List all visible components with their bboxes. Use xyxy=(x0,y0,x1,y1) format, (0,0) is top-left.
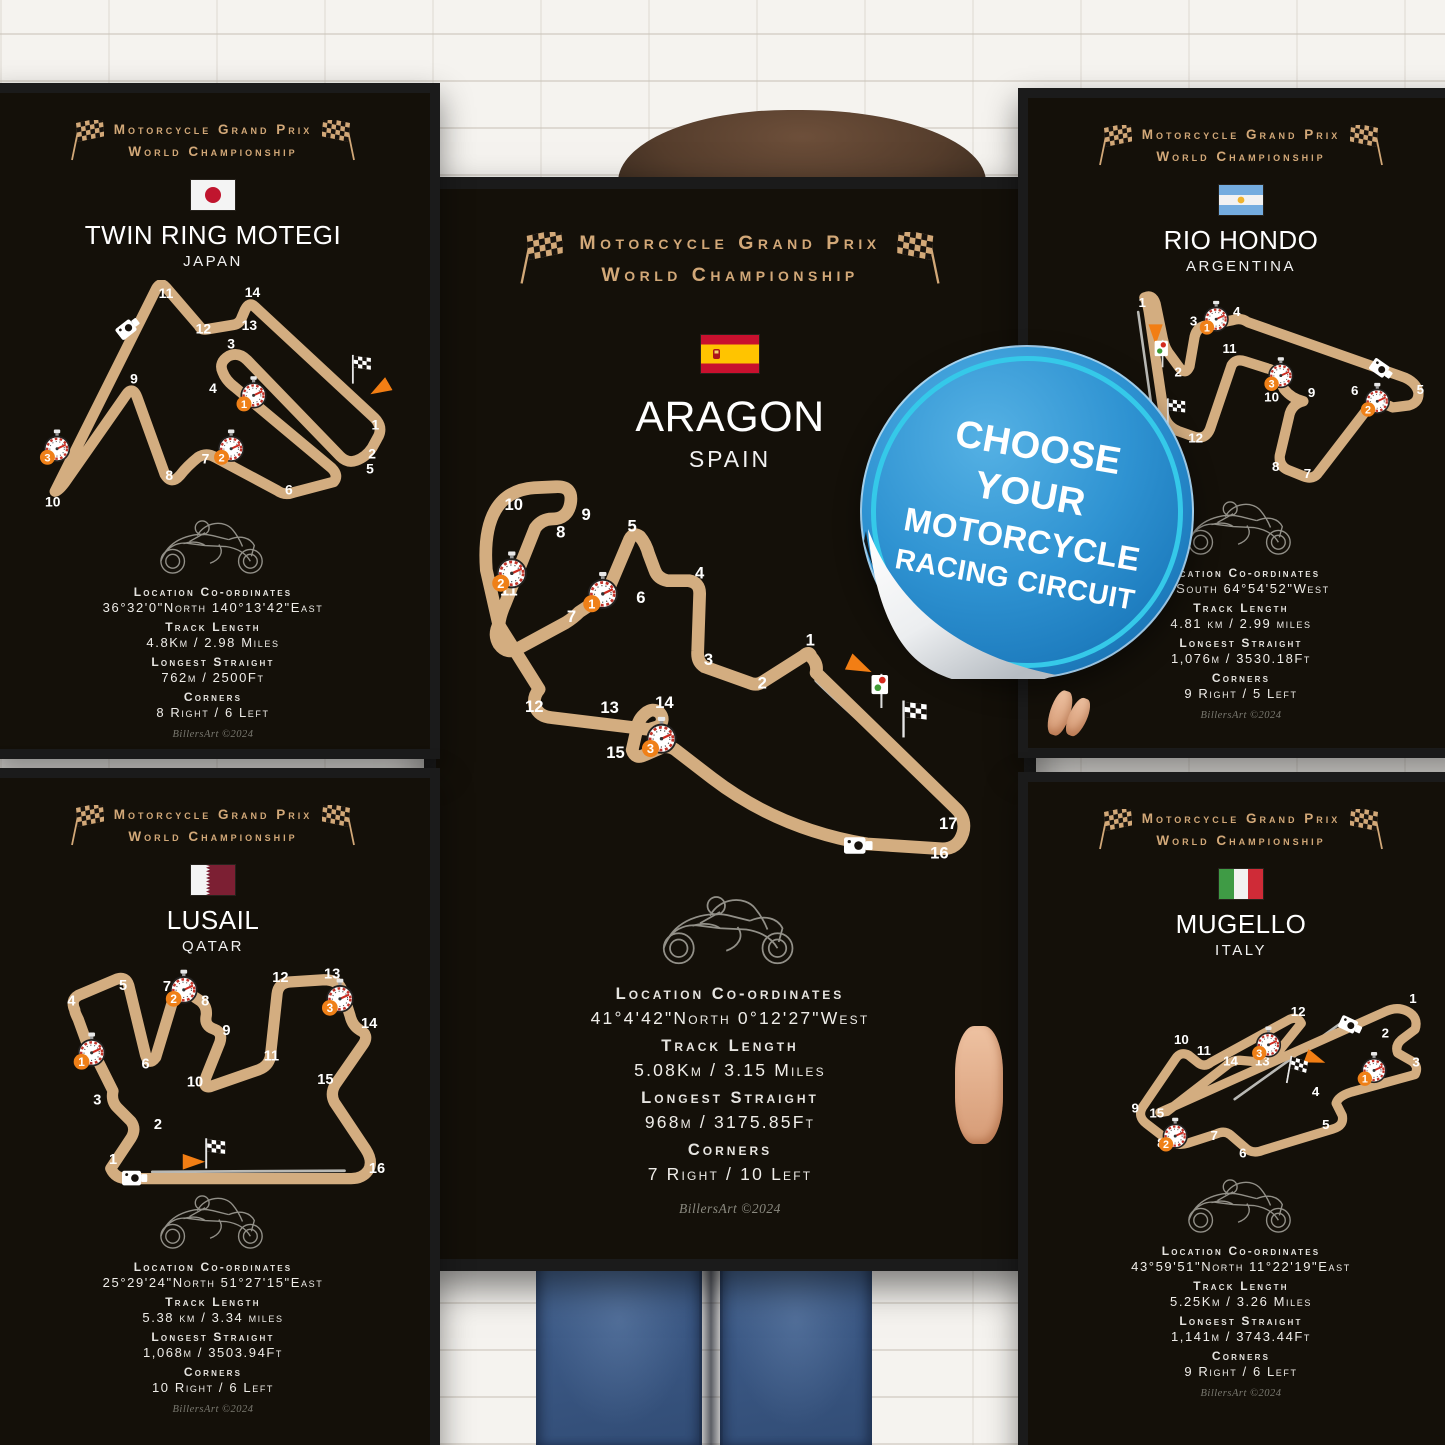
svg-text:2: 2 xyxy=(497,576,504,591)
location-label: Location Co-ordinates xyxy=(1131,1244,1351,1258)
poster-header: Motorcycle Grand Prix World Championship xyxy=(1092,808,1391,851)
circuit-stats: Location Co-ordinates 43°59'51"North 11°… xyxy=(1131,1239,1351,1379)
checkered-flag-icon xyxy=(1350,125,1390,167)
svg-text:1: 1 xyxy=(588,597,595,612)
corner-number: 11 xyxy=(1197,1043,1212,1058)
corner-number: 5 xyxy=(366,461,374,477)
corner-number: 9 xyxy=(222,1023,230,1039)
track-length-label: Track Length xyxy=(1131,1279,1351,1293)
corners-label: Corners xyxy=(103,1365,324,1379)
person-hand xyxy=(955,1026,1003,1144)
corner-number: 17 xyxy=(939,815,958,834)
svg-text:3: 3 xyxy=(647,742,654,757)
corner-number: 2 xyxy=(758,674,767,693)
person-right-leg xyxy=(720,1242,872,1445)
location-value: 41°4'42"North 0°12'27"West xyxy=(591,1007,870,1029)
motorcycle-icon xyxy=(1182,498,1300,557)
marshal-triangle-icon xyxy=(183,1154,205,1170)
corner-number: 8 xyxy=(1272,459,1279,474)
corner-number: 16 xyxy=(930,844,949,863)
checkered-flag-icon xyxy=(511,232,563,286)
checkered-flag-icon xyxy=(322,805,362,847)
longest-straight-label: Longest Straight xyxy=(591,1088,870,1109)
corner-number: 13 xyxy=(242,317,258,333)
corner-number: 14 xyxy=(655,693,674,712)
longest-straight-value: 762m / 2500Ft xyxy=(103,670,324,685)
circuit-name: RIO HONDO xyxy=(1164,225,1319,256)
svg-text:1: 1 xyxy=(78,1056,85,1069)
track-length-label: Track Length xyxy=(103,1295,324,1309)
track-length-label: Track Length xyxy=(103,620,324,634)
circuit-map-lusail: 12345678910111213141516123 xyxy=(22,965,404,1190)
corner-number: 4 xyxy=(1233,304,1241,319)
sticker-text: CHOOSE YOUR MOTORCYCLE RACING CIRCUIT xyxy=(860,345,1194,679)
corner-number: 8 xyxy=(165,467,173,483)
track-length-value: 5.38 km / 3.34 miles xyxy=(103,1310,324,1325)
checkered-flag-marker-icon xyxy=(352,355,371,384)
corner-number: 5 xyxy=(628,517,637,536)
circuit-country: JAPAN xyxy=(183,253,243,270)
circuit-country: ITALY xyxy=(1215,942,1267,959)
flag-spain xyxy=(701,335,759,373)
corner-number: 4 xyxy=(1312,1084,1320,1099)
circuit-name: ARAGON xyxy=(635,393,824,442)
svg-text:1: 1 xyxy=(1204,322,1210,334)
flag-italy xyxy=(1219,869,1263,899)
poster-header: Motorcycle Grand Prix World Championship xyxy=(64,119,363,162)
corner-number: 10 xyxy=(1264,389,1279,404)
corner-number: 6 xyxy=(142,1057,150,1073)
svg-text:3: 3 xyxy=(1256,1048,1262,1060)
checkered-flag-icon xyxy=(322,120,362,162)
marshal-triangle-icon xyxy=(367,377,393,401)
checkered-flag-icon xyxy=(1092,125,1132,167)
start-lights-icon xyxy=(872,674,889,708)
corner-number: 5 xyxy=(119,978,127,994)
corners-label: Corners xyxy=(591,1140,870,1161)
corners-value: 10 Right / 6 Left xyxy=(103,1380,324,1395)
corner-number: 14 xyxy=(245,284,261,300)
checkered-flag-icon xyxy=(1350,809,1390,851)
sticker-face: CHOOSE YOUR MOTORCYCLE RACING CIRCUIT xyxy=(860,345,1194,679)
poster-aragon: Motorcycle Grand Prix World Championship… xyxy=(424,177,1036,1271)
corner-number: 14 xyxy=(1223,1054,1238,1069)
longest-straight-label: Longest Straight xyxy=(103,1330,324,1344)
corner-number: 12 xyxy=(196,321,212,337)
corner-number: 4 xyxy=(67,994,76,1010)
corner-number: 6 xyxy=(636,589,645,608)
location-label: Location Co-ordinates xyxy=(591,984,870,1005)
artist-signature: BillersArt ©2024 xyxy=(1200,1388,1281,1399)
corner-number: 11 xyxy=(159,285,174,301)
circuit-country: SPAIN xyxy=(689,446,771,473)
corner-number: 1 xyxy=(1409,991,1417,1006)
longest-straight-value: 1,068m / 3503.94Ft xyxy=(103,1345,324,1360)
poster-lusail: Motorcycle Grand Prix World Championship… xyxy=(0,768,440,1445)
flag-japan xyxy=(191,180,235,210)
checkered-flag-icon xyxy=(64,120,104,162)
corners-value: 7 Right / 10 Left xyxy=(591,1163,870,1185)
longest-straight-value: 968m / 3175.85Ft xyxy=(591,1111,870,1133)
corner-number: 3 xyxy=(1190,314,1197,329)
corner-number: 1 xyxy=(806,631,815,650)
location-label: Location Co-ordinates xyxy=(103,1260,324,1274)
corner-number: 4 xyxy=(209,380,217,396)
corner-number: 1 xyxy=(372,417,380,433)
corner-number: 12 xyxy=(272,970,288,986)
corner-number: 10 xyxy=(187,1075,203,1091)
header-line1: Motorcycle Grand Prix xyxy=(114,804,313,826)
corner-number: 8 xyxy=(556,523,565,542)
circuit-country: ARGENTINA xyxy=(1186,258,1296,275)
sector-stopwatch-icon: 1 xyxy=(1200,301,1228,335)
corner-number: 6 xyxy=(1239,1146,1246,1161)
circuit-country: QATAR xyxy=(182,938,244,955)
svg-text:1: 1 xyxy=(1362,1074,1368,1086)
corners-label: Corners xyxy=(103,690,324,704)
header-line1: Motorcycle Grand Prix xyxy=(114,119,313,141)
svg-text:2: 2 xyxy=(218,453,224,465)
corner-number: 10 xyxy=(45,494,61,510)
header-line1: Motorcycle Grand Prix xyxy=(1142,124,1341,146)
corner-number: 12 xyxy=(525,697,544,716)
corner-number: 7 xyxy=(202,451,210,467)
svg-text:3: 3 xyxy=(44,453,50,465)
poster-header: Motorcycle Grand Prix World Championship xyxy=(1092,124,1391,167)
corner-number: 3 xyxy=(704,650,713,669)
circuit-stats: Location Co-ordinates 36°32'0"North 140°… xyxy=(103,580,324,720)
corner-number: 3 xyxy=(93,1093,101,1109)
artist-signature: BillersArt ©2024 xyxy=(172,729,253,740)
corner-number: 7 xyxy=(1304,466,1311,481)
header-line2: World Championship xyxy=(1142,830,1341,852)
corners-value: 9 Right / 5 Left xyxy=(1152,686,1330,701)
longest-straight-value: 1,141m / 3743.44Ft xyxy=(1131,1329,1351,1344)
circuit-name: LUSAIL xyxy=(167,905,260,936)
circuit-map-mugello: 123456789101112131415123 xyxy=(1054,969,1444,1174)
sector-stopwatch-icon: 3 xyxy=(40,430,69,465)
location-value: 43°59'51"North 11°22'19"East xyxy=(1131,1259,1351,1274)
circuit-stats: Location Co-ordinates 25°29'24"North 51°… xyxy=(103,1255,324,1395)
corner-number: 6 xyxy=(285,482,293,498)
longest-straight-label: Longest Straight xyxy=(103,655,324,669)
flag-argentina xyxy=(1219,185,1263,215)
artist-signature: BillersArt ©2024 xyxy=(679,1201,781,1217)
checkered-flag-icon xyxy=(897,232,949,286)
checkered-flag-icon xyxy=(64,805,104,847)
sector-stopwatch-icon: 2 xyxy=(214,430,243,465)
track-length-value: 5.25Km / 3.26 Miles xyxy=(1131,1294,1351,1309)
corner-number: 9 xyxy=(1132,1101,1139,1116)
svg-text:1: 1 xyxy=(241,399,247,411)
track-length-value: 4.8Km / 2.98 Miles xyxy=(103,635,324,650)
corner-number: 12 xyxy=(1291,1004,1306,1019)
location-label: Location Co-ordinates xyxy=(103,585,324,599)
corner-number: 3 xyxy=(227,336,235,352)
motorcycle-icon xyxy=(154,517,272,576)
corner-number: 1 xyxy=(109,1152,117,1168)
header-line1: Motorcycle Grand Prix xyxy=(1142,808,1341,830)
circuit-stats: Location Co-ordinates 41°4'42"North 0°12… xyxy=(591,977,870,1185)
checkered-flag-icon xyxy=(1092,809,1132,851)
header-line2: World Championship xyxy=(114,141,313,163)
header-line2: World Championship xyxy=(579,259,880,291)
corner-number: 8 xyxy=(201,994,209,1010)
corner-number: 2 xyxy=(154,1117,162,1133)
artist-signature: BillersArt ©2024 xyxy=(1200,710,1281,721)
corner-number: 10 xyxy=(1174,1032,1189,1047)
checkered-flag-marker-icon xyxy=(205,1138,225,1168)
svg-text:2: 2 xyxy=(170,993,177,1006)
svg-text:3: 3 xyxy=(1269,379,1275,391)
motorcycle-icon xyxy=(1182,1176,1300,1235)
location-value: 25°29'24"North 51°27'15"East xyxy=(103,1275,324,1290)
checkered-flag-marker-icon xyxy=(902,701,926,738)
corner-number: 14 xyxy=(361,1016,378,1032)
poster-header: Motorcycle Grand Prix World Championship xyxy=(64,804,363,847)
corner-number: 15 xyxy=(606,743,625,762)
corner-number: 9 xyxy=(1308,385,1315,400)
header-line2: World Championship xyxy=(114,826,313,848)
corner-number: 4 xyxy=(695,564,705,583)
corners-value: 8 Right / 6 Left xyxy=(103,705,324,720)
corner-number: 3 xyxy=(1412,1055,1419,1070)
longest-straight-label: Longest Straight xyxy=(1131,1314,1351,1328)
sector-stopwatch-icon: 3 xyxy=(1264,357,1292,391)
circuit-name: TWIN RING MOTEGI xyxy=(85,220,341,251)
corner-number: 2 xyxy=(1382,1026,1389,1041)
header-line1: Motorcycle Grand Prix xyxy=(579,227,880,259)
corner-number: 16 xyxy=(369,1161,385,1177)
corner-number: 13 xyxy=(600,698,619,717)
svg-text:2: 2 xyxy=(1163,1139,1169,1151)
poster-mugello: Motorcycle Grand Prix World Championship… xyxy=(1018,772,1445,1445)
corner-number: 2 xyxy=(368,446,376,462)
corner-number: 6 xyxy=(1351,383,1358,398)
poster-header: Motorcycle Grand Prix World Championship xyxy=(511,227,948,291)
corner-number: 9 xyxy=(130,371,138,387)
person-left-leg xyxy=(536,1242,702,1445)
legs-shadow xyxy=(699,1242,723,1445)
corner-number: 7 xyxy=(1210,1128,1217,1143)
sector-stopwatch-icon: 2 xyxy=(1361,383,1389,417)
track-length-label: Track Length xyxy=(591,1036,870,1057)
corner-number: 1 xyxy=(1139,295,1147,310)
corner-number: 9 xyxy=(582,505,591,524)
track-length-value: 5.08Km / 3.15 Miles xyxy=(591,1059,870,1081)
corner-number: 5 xyxy=(1322,1117,1330,1132)
motorcycle-icon xyxy=(655,892,805,967)
svg-text:2: 2 xyxy=(1365,405,1371,417)
corner-number: 11 xyxy=(264,1049,279,1065)
location-value: 36°32'0"North 140°13'42"East xyxy=(103,600,324,615)
promo-sticker: CHOOSE YOUR MOTORCYCLE RACING CIRCUIT xyxy=(860,345,1194,679)
corner-number: 15 xyxy=(317,1072,333,1088)
artist-signature: BillersArt ©2024 xyxy=(172,1404,253,1415)
svg-text:3: 3 xyxy=(327,1002,334,1015)
corner-number: 10 xyxy=(504,496,523,515)
corner-number: 15 xyxy=(1149,1106,1164,1121)
corners-label: Corners xyxy=(1131,1349,1351,1363)
flag-qatar xyxy=(191,865,235,895)
corner-number: 11 xyxy=(1222,341,1237,356)
motorcycle-icon xyxy=(154,1192,272,1251)
corner-number: 5 xyxy=(1417,382,1425,397)
circuit-name: MUGELLO xyxy=(1176,909,1307,940)
corner-number: 7 xyxy=(567,607,576,626)
circuit-map-motegi: 1234567891011121314123 xyxy=(26,280,400,515)
poster-twin-ring-motegi: Motorcycle Grand Prix World Championship… xyxy=(0,83,440,759)
corners-value: 9 Right / 6 Left xyxy=(1131,1364,1351,1379)
header-line2: World Championship xyxy=(1142,146,1341,168)
product-photo-scene: Motorcycle Grand Prix World Championship… xyxy=(0,0,1445,1445)
